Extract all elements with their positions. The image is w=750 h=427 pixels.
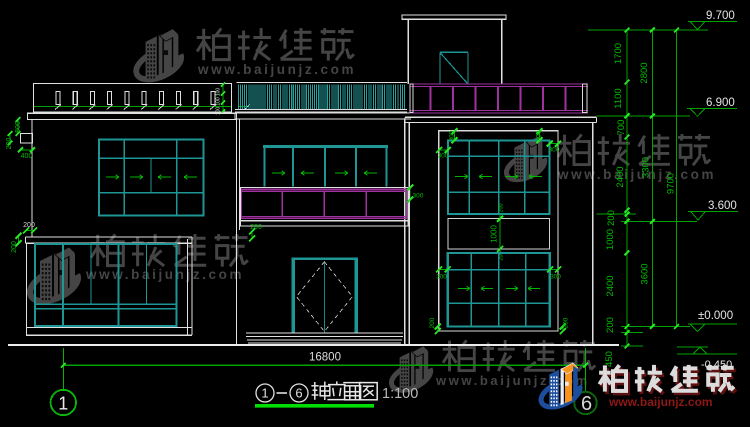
svg-text:6: 6 [581,393,592,415]
